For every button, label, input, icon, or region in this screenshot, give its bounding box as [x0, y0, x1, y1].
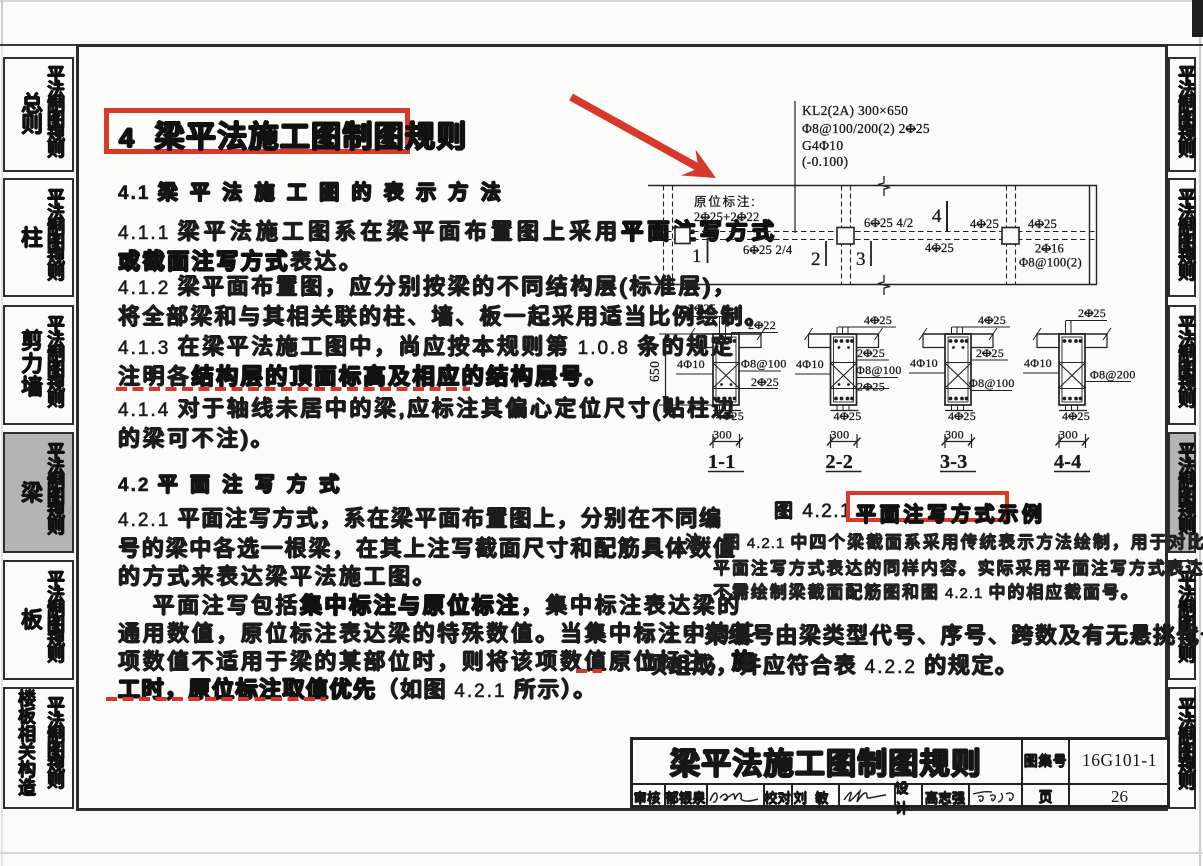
svg-text:2: 2 — [811, 249, 821, 270]
svg-text:Φ8@100: Φ8@100 — [856, 363, 902, 377]
svg-text:2Φ25: 2Φ25 — [751, 375, 779, 389]
svg-text:300: 300 — [1059, 428, 1078, 442]
svg-text:Φ8@100/200(2) 2Φ25: Φ8@100/200(2) 2Φ25 — [802, 121, 930, 136]
svg-text:Φ8@200: Φ8@200 — [1090, 368, 1136, 382]
svg-text:4: 4 — [932, 206, 942, 227]
svg-text:6Φ25 4/2: 6Φ25 4/2 — [864, 216, 913, 230]
svg-text:(-0.100): (-0.100) — [802, 154, 848, 169]
svg-text:4-4: 4-4 — [1054, 451, 1082, 473]
svg-text:2Φ25: 2Φ25 — [857, 380, 885, 394]
svg-text:300: 300 — [713, 428, 732, 442]
svg-text:4Φ25: 4Φ25 — [970, 217, 999, 231]
svg-text:4Φ25: 4Φ25 — [716, 409, 744, 423]
svg-text:Φ8@100: Φ8@100 — [969, 376, 1015, 390]
svg-text:Φ8@100(2): Φ8@100(2) — [1019, 256, 1082, 270]
svg-text:300: 300 — [831, 428, 850, 442]
svg-text:3-3: 3-3 — [940, 451, 968, 473]
svg-text:650: 650 — [647, 361, 662, 382]
svg-text:2-2: 2-2 — [826, 451, 854, 473]
svg-text:3: 3 — [856, 249, 866, 270]
svg-text:2Φ16: 2Φ16 — [1035, 242, 1064, 256]
svg-text:300: 300 — [945, 428, 964, 442]
svg-text:原位标注:: 原位标注: — [694, 194, 756, 209]
svg-text:2Φ25: 2Φ25 — [857, 346, 885, 360]
svg-text:4Φ25: 4Φ25 — [834, 409, 862, 423]
svg-text:2Φ25: 2Φ25 — [1078, 306, 1106, 320]
svg-text:2Φ22: 2Φ22 — [748, 318, 776, 332]
svg-text:4Φ25: 4Φ25 — [864, 313, 892, 327]
svg-text:1-1: 1-1 — [708, 451, 736, 473]
svg-text:4Φ25: 4Φ25 — [1062, 409, 1090, 423]
svg-text:4Φ10: 4Φ10 — [910, 356, 938, 370]
svg-text:2Φ25: 2Φ25 — [976, 346, 1004, 360]
svg-text:4Φ10: 4Φ10 — [796, 357, 824, 371]
svg-text:2Φ25: 2Φ25 — [688, 301, 716, 315]
svg-text:4Φ10: 4Φ10 — [1024, 356, 1052, 370]
svg-text:4Φ25: 4Φ25 — [925, 241, 954, 255]
svg-text:G4Φ10: G4Φ10 — [802, 138, 843, 153]
svg-text:Φ8@100: Φ8@100 — [741, 357, 787, 371]
svg-text:4Φ25: 4Φ25 — [978, 313, 1006, 327]
svg-text:4Φ25: 4Φ25 — [948, 409, 976, 423]
svg-text:2Φ25+2Φ22: 2Φ25+2Φ22 — [694, 210, 760, 224]
svg-text:KL2(2A) 300×650: KL2(2A) 300×650 — [802, 103, 908, 118]
svg-text:6Φ25 2/4: 6Φ25 2/4 — [743, 243, 793, 257]
svg-text:4Φ10: 4Φ10 — [677, 357, 705, 371]
svg-text:1: 1 — [692, 246, 702, 267]
svg-text:4Φ25: 4Φ25 — [1028, 217, 1057, 231]
